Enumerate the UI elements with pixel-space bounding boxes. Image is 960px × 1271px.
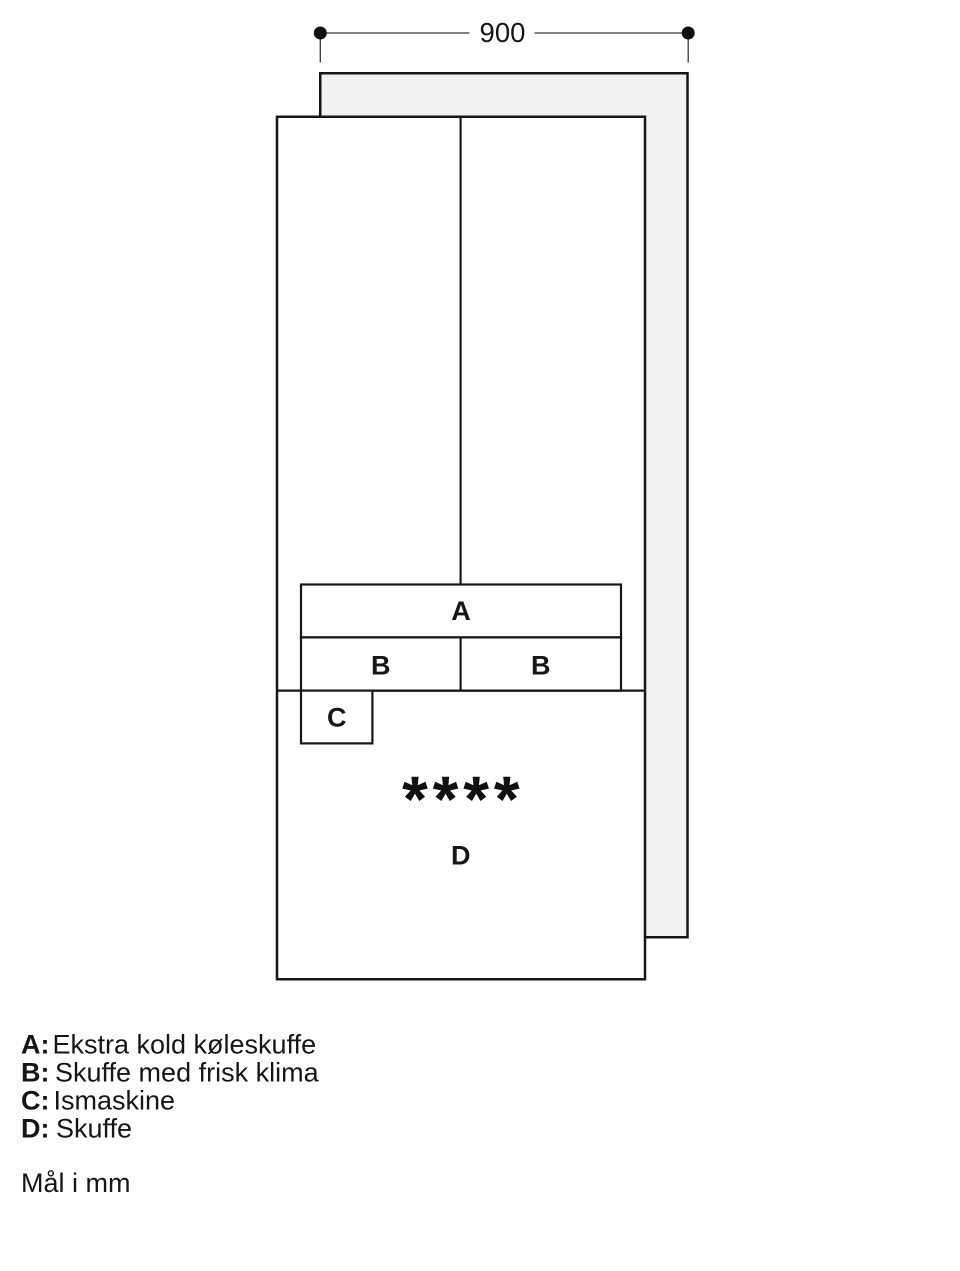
svg-text:A: A (451, 596, 471, 626)
svg-text:B: B (371, 650, 391, 680)
svg-text:B: B (531, 650, 551, 680)
svg-text:Mål i mm: Mål i mm (21, 1168, 131, 1198)
svg-text:C:Ismaskine: C:Ismaskine (21, 1086, 175, 1116)
svg-text:D: D (451, 840, 471, 870)
svg-text:A:Ekstra kold køleskuffe: A:Ekstra kold køleskuffe (21, 1030, 316, 1060)
svg-text:900: 900 (480, 17, 526, 48)
svg-text:B:Skuffe med frisk klima: B:Skuffe med frisk klima (21, 1058, 320, 1088)
svg-text:D:Skuffe: D:Skuffe (21, 1114, 132, 1144)
svg-text:C: C (327, 703, 347, 733)
